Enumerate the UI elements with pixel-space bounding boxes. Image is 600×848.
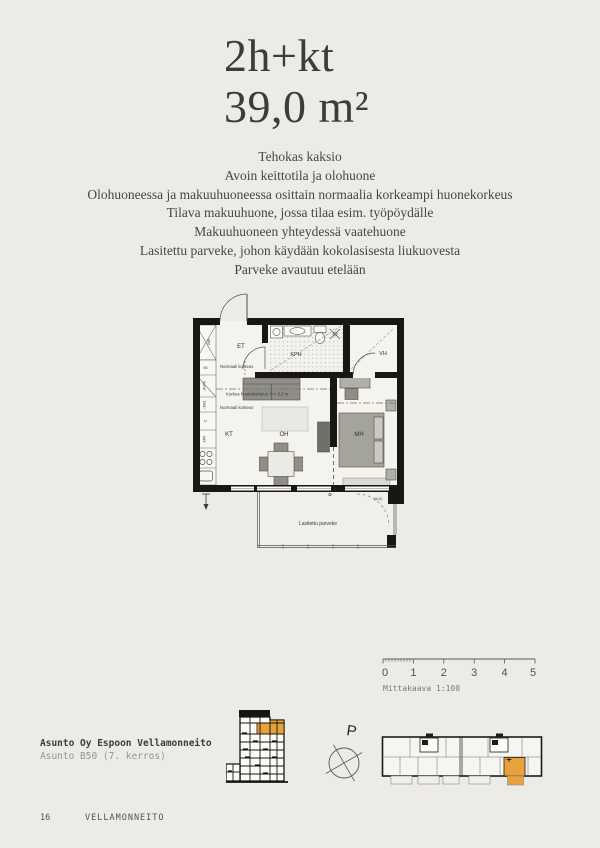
highlighted-unit — [504, 758, 525, 777]
scale-tick: 5 — [530, 667, 536, 679]
tv-stand — [318, 422, 330, 452]
description-line: Olohuoneessa ja makuuhuoneessa osittain … — [0, 186, 600, 205]
elevation-shapes — [226, 710, 288, 782]
scale-caption: Mittakaava 1:100 — [383, 684, 460, 693]
dining-table — [268, 452, 294, 477]
description-line: Tehokas kaksio — [0, 148, 600, 167]
normal-height-upper: Normaali korkeus — [220, 364, 253, 369]
balcony-label: Lasitettu parveke — [299, 521, 337, 527]
rug — [262, 407, 308, 431]
nightstand — [386, 469, 396, 480]
brochure-page: 2h+kt 39,0 m² Tehokas kaksio Avoin keitt… — [0, 0, 600, 848]
north-label: P — [345, 722, 357, 740]
chair — [294, 457, 303, 471]
nightstand — [386, 400, 396, 411]
pillow — [374, 417, 383, 439]
apartment-area: 39,0 m² — [224, 81, 369, 132]
chair — [274, 477, 288, 486]
entry-door-arc — [220, 294, 247, 321]
room-label-kt: KT — [225, 432, 233, 438]
floor-plate — [380, 732, 545, 799]
appliance-dishwasher: APK — [203, 435, 207, 443]
closet-label: VAR — [207, 338, 211, 345]
scale-ruler — [383, 659, 535, 664]
scale-tick: 4 — [502, 667, 508, 679]
compass-drawing: P — [320, 720, 368, 788]
floor-plan: ET KPH VH KT OH MH Normaali korkeus Kork… — [193, 285, 405, 557]
balcony-exit-label: (ULK) — [374, 497, 382, 501]
floor-plate-shapes — [383, 734, 542, 786]
normal-height-lower: Normaali korkeus — [220, 405, 253, 410]
chair — [274, 443, 288, 452]
appliance-sk: SK — [203, 366, 208, 370]
page-number: 16 — [40, 813, 50, 823]
description-line: Makuuhuoneen yhteydessä vaatehuone — [0, 223, 600, 242]
apartment-info: Asunto B50 (7. kerros) — [40, 751, 212, 764]
scale-tick: 3 — [471, 667, 477, 679]
exit-arrow — [202, 494, 210, 510]
page-title: 2h+kt 39,0 m² — [224, 30, 369, 132]
highlighted-balcony — [508, 776, 524, 785]
appliance-micro: (MU) — [203, 401, 207, 409]
footer-brand: VELLAMONNEITO — [85, 813, 165, 823]
location-info: Asunto Oy Espoon Vellamonneito Asunto B5… — [40, 738, 212, 763]
floor-plate-drawing — [380, 732, 545, 794]
apartment-type: 2h+kt — [224, 30, 369, 81]
description: Tehokas kaksio Avoin keittotila ja olohu… — [0, 148, 600, 280]
room-label-vh: VH — [379, 351, 387, 357]
description-line: Tilava makuuhuone, jossa tilaa esim. työ… — [0, 204, 600, 223]
scale-tick: 0 — [382, 667, 388, 679]
floor-plan-drawing: ET KPH VH KT OH MH Normaali korkeus Kork… — [193, 285, 405, 557]
scale-bar-drawing: 0 1 2 3 4 5 Mittakaava 1:100 — [380, 654, 540, 696]
description-line: Parveke avautuu etelään — [0, 261, 600, 280]
desk-chair — [345, 389, 358, 400]
compass: P — [320, 720, 368, 793]
pillow — [374, 441, 383, 463]
chair — [260, 457, 269, 471]
highlighted-floor — [257, 723, 270, 734]
scale-tick: 2 — [441, 667, 447, 679]
appliance-fridge: JK/PA — [203, 381, 207, 391]
room-label-mh: MH — [354, 432, 363, 438]
room-label-et: ET — [237, 344, 245, 350]
project-name: Asunto Oy Espoon Vellamonneito — [40, 738, 212, 751]
scale-tick: 1 — [410, 667, 416, 679]
scale-tick-labels: 0 1 2 3 4 5 — [382, 667, 536, 679]
building-elevation-drawing — [226, 708, 294, 793]
building-elevation — [226, 708, 294, 798]
description-line: Avoin keittotila ja olohuone — [0, 167, 600, 186]
room-label-kph: KPH — [290, 352, 301, 358]
scale-bar: 0 1 2 3 4 5 Mittakaava 1:100 — [380, 654, 540, 701]
description-line: Lasitettu parveke, johon käydään kokolas… — [0, 242, 600, 261]
appliance-oven: U — [204, 419, 207, 423]
room-label-oh: OH — [280, 432, 289, 438]
high-ceiling-note: Korkea huonekorkeus, h > 3,2 m — [226, 392, 289, 397]
